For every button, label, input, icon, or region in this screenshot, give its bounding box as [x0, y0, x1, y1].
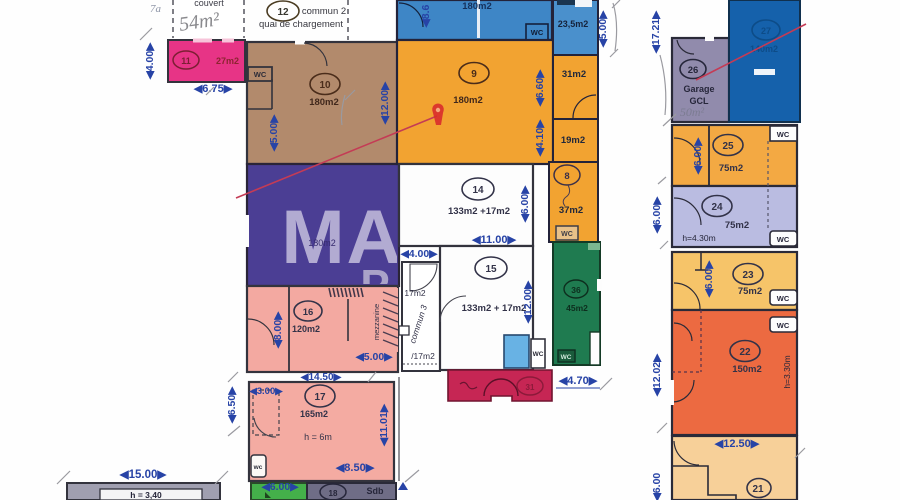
svg-text:commun 2: commun 2	[302, 6, 346, 17]
svg-text:◀4.00▶: ◀4.00▶	[400, 248, 439, 260]
svg-text:◀12.00▶: ◀12.00▶	[522, 280, 534, 324]
svg-text:couvert: couvert	[194, 0, 224, 8]
svg-text:21: 21	[752, 484, 764, 495]
svg-text:150m2: 150m2	[732, 364, 762, 375]
svg-text:◀3.00▶: ◀3.00▶	[248, 386, 284, 397]
svg-text:23,5m2: 23,5m2	[558, 19, 589, 29]
svg-text:WC: WC	[254, 70, 267, 79]
svg-text:12: 12	[277, 7, 289, 18]
svg-text:h=3.30m: h=3.30m	[782, 355, 792, 388]
svg-text:mezzanine: mezzanine	[372, 304, 381, 340]
svg-text:◀8.6: ◀8.6	[420, 5, 432, 29]
svg-text:◀12.00▶: ◀12.00▶	[379, 81, 391, 125]
svg-text:quai de chargement: quai de chargement	[259, 19, 343, 30]
svg-text:8: 8	[564, 171, 569, 182]
svg-text:133m2 + 17m2: 133m2 + 17m2	[462, 303, 527, 314]
svg-text:◀12.02▶: ◀12.02▶	[651, 353, 663, 397]
svg-text:25: 25	[722, 141, 734, 152]
svg-text:18: 18	[329, 489, 338, 498]
svg-text:◀5.00▶: ◀5.00▶	[355, 351, 394, 363]
svg-text:Garage: Garage	[683, 84, 714, 94]
svg-text:23: 23	[742, 270, 754, 281]
svg-text:17: 17	[314, 392, 326, 403]
svg-text:75m2: 75m2	[738, 286, 762, 297]
svg-text:◀6.00: ◀6.00	[651, 473, 663, 500]
svg-text:◀6.50▶: ◀6.50▶	[226, 386, 238, 425]
svg-text:◀11.01▶: ◀11.01▶	[378, 403, 390, 447]
svg-text:◀6.60▶: ◀6.60▶	[534, 69, 546, 108]
svg-text:WC: WC	[777, 321, 790, 330]
svg-text:◀6.00▶: ◀6.00▶	[703, 260, 715, 299]
svg-text:WC: WC	[777, 235, 790, 244]
svg-text:◀4.70▶: ◀4.70▶	[558, 375, 598, 387]
svg-text:◀8.00▶: ◀8.00▶	[272, 311, 284, 350]
svg-text:◀15.00▶: ◀15.00▶	[119, 469, 168, 481]
svg-text:36: 36	[571, 285, 581, 295]
svg-text:h=4.30m: h=4.30m	[682, 233, 715, 243]
svg-text:26: 26	[688, 65, 699, 76]
svg-text:180m2: 180m2	[462, 1, 492, 12]
svg-text:22: 22	[739, 347, 751, 358]
svg-text:WC: WC	[777, 130, 790, 139]
svg-text:◀6.00▶: ◀6.00▶	[519, 185, 531, 224]
svg-text:165m2: 165m2	[300, 409, 328, 419]
svg-text:180m2: 180m2	[308, 238, 336, 248]
svg-text:/17m2: /17m2	[411, 351, 435, 361]
svg-text:16: 16	[303, 307, 314, 318]
svg-text:◀5.00▶: ◀5.00▶	[597, 10, 609, 49]
svg-text:180m2: 180m2	[309, 97, 339, 108]
svg-text:17m2: 17m2	[404, 288, 426, 298]
svg-text:14: 14	[472, 185, 484, 196]
svg-text:9: 9	[471, 69, 477, 80]
svg-text:WC: WC	[777, 294, 790, 303]
svg-text:45m2: 45m2	[566, 303, 588, 313]
svg-text:WC: WC	[561, 231, 573, 238]
svg-text:11: 11	[181, 56, 191, 66]
svg-text:◀8.50▶: ◀8.50▶	[335, 462, 375, 474]
svg-text:24: 24	[711, 202, 723, 213]
svg-text:31m2: 31m2	[562, 69, 586, 80]
svg-text:7a: 7a	[150, 3, 162, 15]
svg-text:h = 6m: h = 6m	[304, 432, 332, 442]
svg-text:WC: WC	[533, 351, 544, 358]
svg-text:Sdb: Sdb	[367, 486, 385, 496]
svg-text:wc: wc	[253, 464, 263, 471]
svg-text:◀11.00▶: ◀11.00▶	[471, 234, 516, 246]
svg-text:◀4.10▶: ◀4.10▶	[534, 119, 546, 158]
svg-text:120m2: 120m2	[292, 324, 320, 334]
svg-text:◀4.00▶: ◀4.00▶	[144, 42, 156, 81]
svg-text:h = 3,40: h = 3,40	[130, 490, 162, 500]
svg-text:27: 27	[761, 26, 771, 36]
svg-text:◀12.50▶: ◀12.50▶	[714, 438, 760, 450]
svg-text:10: 10	[319, 80, 331, 91]
svg-text:◀17.21▶: ◀17.21▶	[650, 10, 662, 54]
svg-text:◀6.00▶: ◀6.00▶	[651, 196, 663, 235]
svg-text:◀6.00▶: ◀6.00▶	[261, 481, 300, 493]
svg-text:15: 15	[485, 264, 497, 275]
svg-text:31: 31	[526, 383, 535, 392]
svg-text:WC: WC	[531, 28, 544, 37]
svg-text:WC: WC	[561, 354, 572, 361]
svg-text:133m2 +17m2: 133m2 +17m2	[448, 206, 510, 217]
svg-text:◀5.00▶: ◀5.00▶	[268, 114, 280, 153]
svg-text:19m2: 19m2	[561, 135, 585, 146]
svg-text:◀6.00▶: ◀6.00▶	[692, 137, 704, 176]
svg-text:75m2: 75m2	[725, 220, 749, 231]
svg-text:180m2: 180m2	[453, 95, 483, 106]
svg-text:27m2: 27m2	[216, 56, 239, 66]
svg-text:50m²: 50m²	[680, 105, 705, 119]
svg-text:37m2: 37m2	[559, 205, 583, 216]
svg-text:75m2: 75m2	[719, 163, 743, 174]
